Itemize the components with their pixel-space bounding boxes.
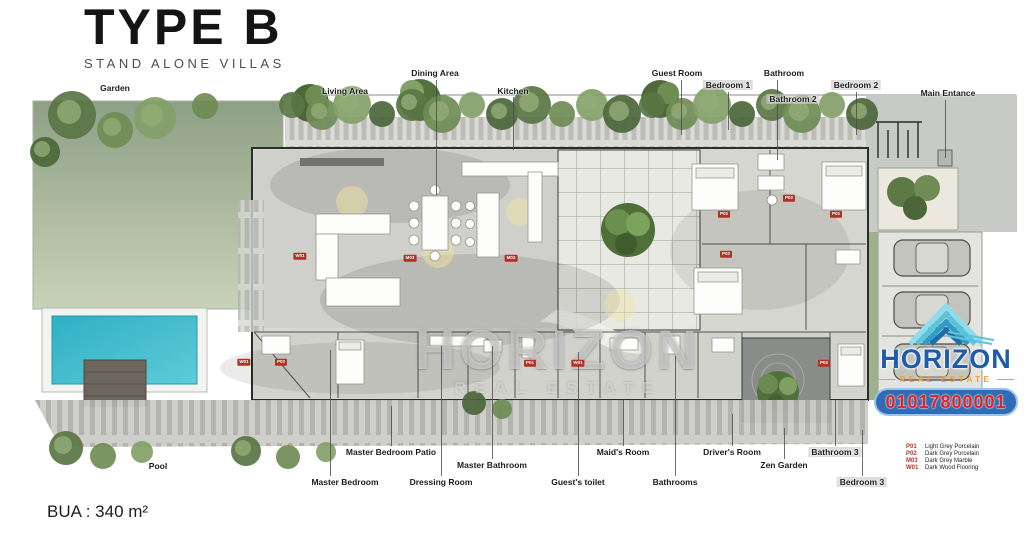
legend-name: Dark Wood Flooring	[925, 465, 978, 472]
legend-row-w01: W01Dark Wood Flooring	[906, 465, 979, 472]
legend-name: Dark Grey Marble	[925, 458, 972, 465]
legend-code: P01	[906, 444, 921, 451]
built-up-area-note: BUA : 340 m²	[47, 502, 148, 522]
tagline-dash	[878, 379, 895, 381]
floor-plan-page: TYPE B STAND ALONE VILLAS HORIZON REAL E…	[0, 0, 1024, 533]
legend-code: M03	[906, 458, 921, 465]
page-title: TYPE B	[84, 2, 285, 52]
legend-row-m03: M03Dark Grey Marble	[906, 458, 979, 465]
phone-number: 01017800001	[885, 393, 1006, 411]
pool-deck	[84, 360, 146, 406]
layered-pyramid-icon	[898, 300, 994, 346]
phone-badge: 01017800001	[874, 388, 1018, 416]
car-icon	[894, 240, 970, 276]
brand-name: HORIZON	[868, 346, 1024, 373]
swimming-pool	[42, 308, 207, 406]
title-block: TYPE B STAND ALONE VILLAS	[84, 2, 285, 71]
legend-name: Light Grey Porcelain	[925, 444, 979, 451]
brand-logo-block: HORIZON REAL ESTATE 01017800001	[868, 300, 1024, 416]
entrance-planting-bed	[878, 168, 958, 230]
legend-code: W01	[906, 465, 921, 472]
front-walkway	[35, 400, 868, 447]
legend-code: P02	[906, 451, 921, 458]
materials-legend: P01Light Grey PorcelainP02Dark Grey Porc…	[906, 444, 979, 472]
floor-plan-drawing	[0, 0, 1024, 533]
courtyard-tree	[601, 203, 655, 257]
brand-tagline-text: REAL ESTATE	[900, 375, 993, 384]
brand-tagline: REAL ESTATE	[868, 375, 1024, 384]
page-subtitle: STAND ALONE VILLAS	[84, 56, 285, 71]
tagline-dash	[997, 379, 1014, 381]
legend-row-p01: P01Light Grey Porcelain	[906, 444, 979, 451]
legend-name: Dark Grey Porcelain	[925, 451, 979, 458]
legend-row-p02: P02Dark Grey Porcelain	[906, 451, 979, 458]
